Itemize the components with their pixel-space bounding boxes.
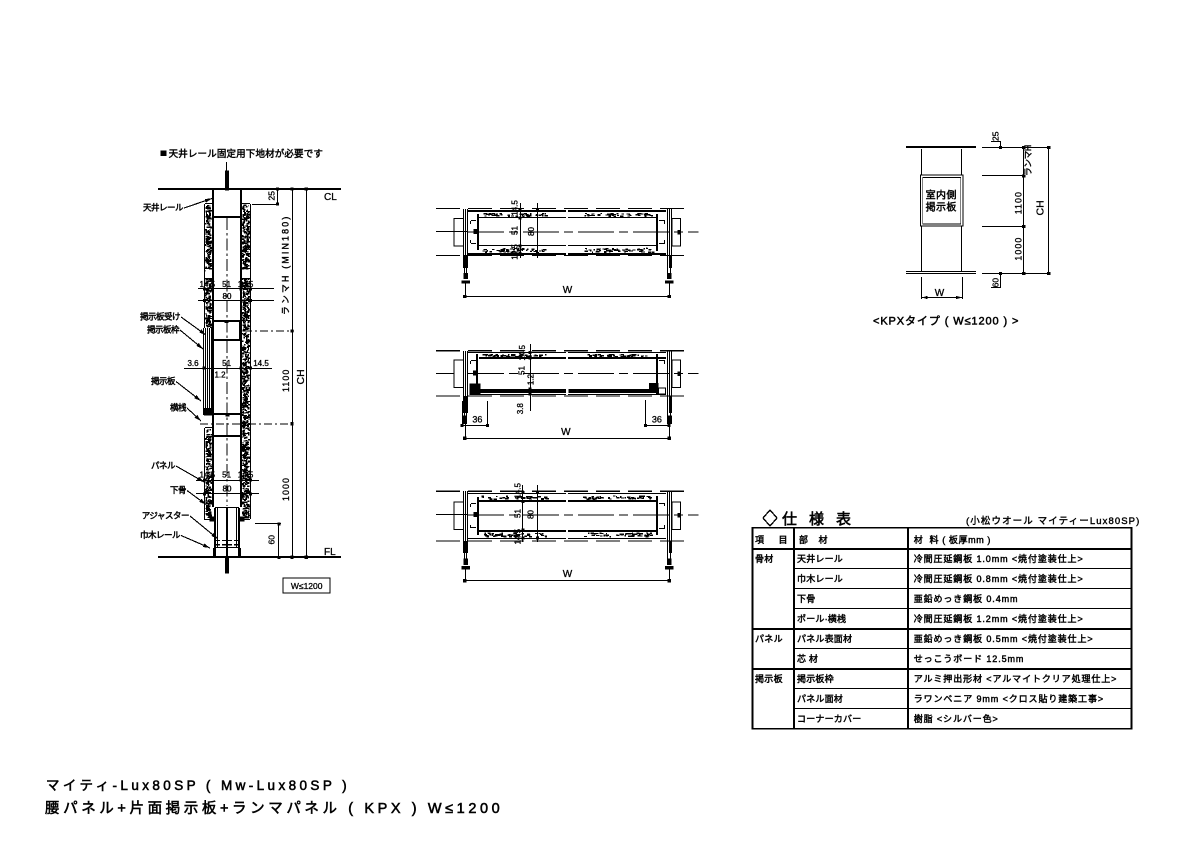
- svg-text:3.6: 3.6: [187, 359, 199, 368]
- svg-text:51: 51: [222, 359, 231, 368]
- svg-text:亜鉛めっき鋼板 0.4mm: 亜鉛めっき鋼板 0.4mm: [914, 593, 1019, 604]
- svg-text:CL: CL: [324, 192, 337, 203]
- svg-text:掲示板枠: 掲示板枠: [797, 673, 834, 684]
- svg-text:25: 25: [267, 191, 277, 201]
- svg-text:1100: 1100: [1014, 191, 1024, 214]
- svg-text:80: 80: [223, 485, 232, 494]
- svg-text:W: W: [563, 285, 573, 296]
- svg-text:仕様表: 仕様表: [782, 511, 863, 528]
- svg-text:項: 項: [755, 535, 764, 545]
- svg-text:25: 25: [990, 131, 1000, 141]
- svg-text:36: 36: [652, 414, 662, 424]
- svg-text:冷間圧延鋼板 0.8mm <焼付塗装仕上>: 冷間圧延鋼板 0.8mm <焼付塗装仕上>: [914, 573, 1084, 584]
- svg-text:材: 材: [819, 534, 828, 545]
- svg-text:1000: 1000: [1014, 237, 1024, 261]
- svg-text:60: 60: [267, 535, 277, 545]
- svg-text:コーナーカバー: コーナーカバー: [797, 714, 861, 724]
- svg-text:パネル面材: パネル面材: [797, 693, 843, 704]
- svg-text:60: 60: [990, 278, 1000, 288]
- svg-text:芯 材: 芯 材: [797, 653, 818, 664]
- svg-text:51: 51: [510, 226, 519, 235]
- svg-text:FL: FL: [324, 547, 336, 558]
- svg-text:掲示板: 掲示板: [755, 673, 783, 684]
- svg-text:ランマH: ランマH: [1023, 145, 1033, 176]
- svg-text:材: 材: [914, 534, 923, 545]
- svg-text:パネル: パネル: [151, 461, 176, 471]
- svg-text:80: 80: [527, 510, 536, 519]
- svg-text:冷間圧延鋼板 1.0mm <焼付塗装仕上>: 冷間圧延鋼板 1.0mm <焼付塗装仕上>: [914, 553, 1084, 564]
- svg-text:W: W: [561, 427, 571, 438]
- svg-text:せっこうボード 12.5mm: せっこうボード 12.5mm: [914, 654, 1025, 664]
- svg-text:骨材: 骨材: [755, 553, 774, 564]
- svg-text:巾木レール: 巾木レール: [797, 573, 843, 584]
- svg-text:料 ( 板厚mm ): 料 ( 板厚mm ): [930, 534, 992, 545]
- svg-text:樹脂 <シルバー色>: 樹脂 <シルバー色>: [914, 713, 999, 724]
- svg-text:14.5: 14.5: [513, 528, 522, 544]
- svg-text:80: 80: [223, 292, 232, 301]
- svg-text:マイティ-Lux80SP ( Mw-Lux80SP ): マイティ-Lux80SP ( Mw-Lux80SP ): [46, 778, 350, 793]
- svg-text:1.2: 1.2: [527, 373, 536, 385]
- svg-text:14.5: 14.5: [518, 344, 527, 360]
- svg-text:14.5: 14.5: [510, 244, 519, 260]
- svg-text:<KPXタイプ ( W≤1200 ) >: <KPXタイプ ( W≤1200 ) >: [873, 315, 1019, 328]
- svg-text:ポール·横桟: ポール·横桟: [797, 613, 846, 624]
- svg-text:14.5: 14.5: [253, 359, 269, 368]
- svg-text:1000: 1000: [281, 477, 291, 501]
- svg-text:アジャスター: アジャスター: [142, 511, 189, 521]
- svg-text:51: 51: [513, 509, 522, 518]
- svg-text:1100: 1100: [281, 369, 291, 392]
- svg-text:パネル表面材: パネル表面材: [797, 633, 852, 644]
- svg-text:CH: CH: [1035, 200, 1047, 215]
- svg-text:天井レール固定用下地材が必要です: 天井レール固定用下地材が必要です: [169, 148, 323, 160]
- svg-text:1.2: 1.2: [214, 371, 226, 380]
- svg-text:掲示板枠: 掲示板枠: [147, 325, 180, 335]
- svg-text:亜鉛めっき鋼板 0.5mm <焼付塗装仕上>: 亜鉛めっき鋼板 0.5mm <焼付塗装仕上>: [914, 633, 1094, 644]
- svg-text:掲示板: 掲示板: [151, 376, 176, 386]
- svg-text:横桟: 横桟: [170, 403, 187, 413]
- svg-text:ラワンベニア 9mm <クロス貼り建築工事>: ラワンベニア 9mm <クロス貼り建築工事>: [914, 693, 1104, 704]
- svg-text:天井レール: 天井レール: [143, 203, 184, 213]
- svg-text:14.5: 14.5: [200, 471, 216, 480]
- svg-text:掲示板: 掲示板: [926, 201, 957, 214]
- svg-text:冷間圧延鋼板 1.2mm <焼付塗装仕上>: 冷間圧延鋼板 1.2mm <焼付塗装仕上>: [914, 613, 1084, 624]
- svg-text:アルミ押出形材 <アルマイトクリア処理仕上>: アルミ押出形材 <アルマイトクリア処理仕上>: [914, 673, 1118, 684]
- svg-text:3.8: 3.8: [516, 403, 525, 415]
- svg-text:14.5: 14.5: [510, 200, 519, 216]
- svg-text:巾木レール: 巾木レール: [140, 530, 181, 540]
- svg-text:W≤1200: W≤1200: [291, 581, 323, 591]
- svg-text:51: 51: [222, 471, 231, 480]
- svg-text:14.5: 14.5: [238, 471, 254, 480]
- svg-text:室内側: 室内側: [926, 189, 957, 202]
- svg-text:部: 部: [799, 534, 808, 545]
- svg-text:(小松ウオール マイティーLux80SP): (小松ウオール マイティーLux80SP): [966, 515, 1140, 527]
- svg-text:目: 目: [779, 535, 788, 545]
- svg-text:ランマH (MIN180): ランマH (MIN180): [281, 215, 291, 315]
- svg-text:CH: CH: [295, 369, 307, 384]
- svg-text:36: 36: [472, 414, 482, 424]
- svg-text:14.5: 14.5: [513, 482, 522, 498]
- svg-text:51: 51: [222, 280, 231, 289]
- svg-text:W: W: [563, 569, 573, 580]
- svg-text:51: 51: [518, 366, 527, 375]
- svg-text:掲示板受け: 掲示板受け: [140, 312, 180, 322]
- svg-text:W: W: [935, 288, 945, 299]
- svg-text:腰パネル+片面掲示板+ランマパネル ( KPX ) W≤12: 腰パネル+片面掲示板+ランマパネル ( KPX ) W≤1200: [45, 799, 503, 817]
- svg-text:80: 80: [527, 227, 536, 236]
- svg-text:下骨: 下骨: [170, 485, 186, 495]
- svg-text:下骨: 下骨: [797, 594, 815, 604]
- svg-text:天井レール: 天井レール: [797, 553, 843, 564]
- svg-text:パネル: パネル: [755, 634, 783, 644]
